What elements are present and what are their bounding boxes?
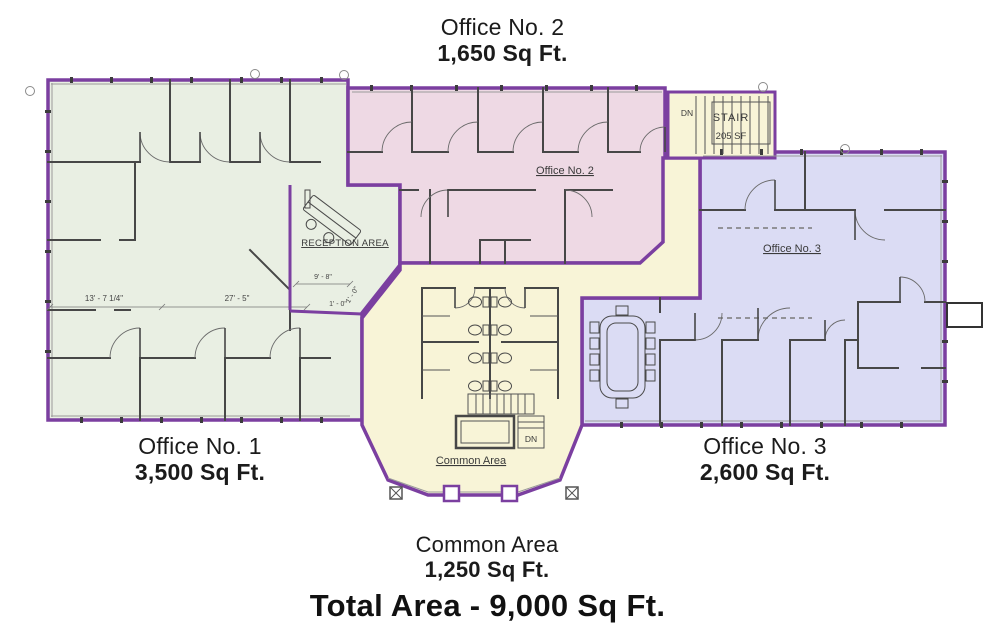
- dimension-mid-width: 27' - 5": [225, 294, 250, 303]
- office3-callout-area: 2,600 Sq Ft.: [650, 459, 880, 485]
- common-dn-label: DN: [525, 434, 537, 444]
- common-callout-area: 1,250 Sq Ft.: [372, 557, 602, 582]
- stair-dn-label: DN: [681, 108, 693, 118]
- stair-label: STAIR: [713, 112, 750, 124]
- office2-callout: Office No. 2 1,650 Sq Ft.: [385, 14, 620, 66]
- office2-callout-name: Office No. 2: [385, 14, 620, 40]
- exterior-fin: [947, 303, 982, 327]
- office3-room-label: Office No. 3: [763, 243, 821, 255]
- office2-room-label: Office No. 2: [536, 165, 594, 177]
- dimension-offset-h: 1' - 0": [329, 301, 347, 308]
- column-symbol-left: [390, 487, 402, 499]
- office1-callout-area: 3,500 Sq Ft.: [85, 459, 315, 485]
- common-callout: Common Area 1,250 Sq Ft.: [372, 532, 602, 582]
- office1-callout-name: Office No. 1: [85, 433, 315, 459]
- dimension-reception-width: 9' - 8": [314, 274, 332, 281]
- office1-callout: Office No. 1 3,500 Sq Ft.: [85, 433, 315, 485]
- dimension-left-width: 13' - 7 1/4": [85, 294, 123, 303]
- office3-callout-name: Office No. 3: [650, 433, 880, 459]
- stair-area-label: 205 SF: [716, 131, 747, 142]
- office2-callout-area: 1,650 Sq Ft.: [385, 40, 620, 66]
- office3-callout: Office No. 3 2,600 Sq Ft.: [650, 433, 880, 485]
- column-symbol-right: [566, 487, 578, 499]
- floor-plan-page: 13' - 7 1/4" 27' - 5" RECEPTION AREA 9' …: [0, 0, 985, 642]
- total-area-label: Total Area - 9,000 Sq Ft.: [0, 588, 975, 624]
- common-callout-name: Common Area: [372, 532, 602, 557]
- common-room-label: Common Area: [436, 455, 507, 467]
- reception-label: RECEPTION AREA: [301, 238, 389, 249]
